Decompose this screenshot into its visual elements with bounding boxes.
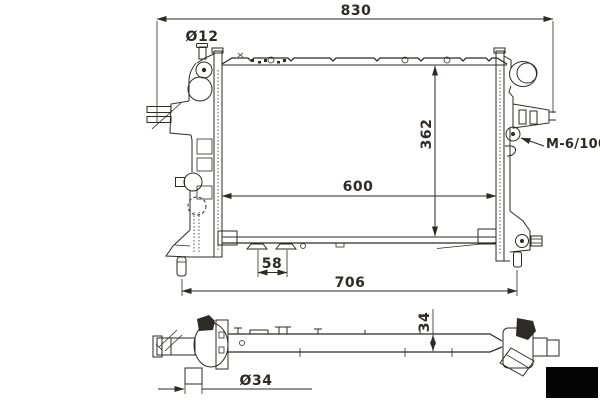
plan-top-clips <box>234 327 420 334</box>
dim-o34-label: Ø34 <box>240 373 273 389</box>
dim-706-label: 706 <box>335 275 366 291</box>
dimension-bleed-pipe: Ø12 <box>186 29 219 45</box>
thread-label: M-6/100 <box>546 137 600 152</box>
dim-34-label: 34 <box>417 312 433 332</box>
lower-bracket <box>166 230 190 257</box>
mounting-pin <box>147 117 171 123</box>
dimension-830: 830 <box>157 3 553 122</box>
bleed-pipe <box>199 47 206 59</box>
mounting-foot <box>276 244 296 249</box>
angled-pipe <box>500 348 534 376</box>
bottom-view <box>153 315 559 384</box>
dim-600-label: 600 <box>343 179 374 195</box>
dimension-34: 34 <box>417 309 433 351</box>
left-header-plate <box>212 48 223 257</box>
dimension-600: 600 <box>222 179 496 196</box>
outlet-pipe-plan <box>185 368 202 384</box>
radiator-drawing-page: 830 Ø12 600 362 58 706 M-6/100 <box>0 0 600 400</box>
core-top-header <box>222 53 507 65</box>
front-view <box>147 44 556 277</box>
mounting-pin <box>147 107 171 113</box>
dim-830-label: 830 <box>341 3 372 19</box>
core-bottom-edge <box>222 237 496 249</box>
plan-left-tank <box>153 315 228 384</box>
dim-58-label: 58 <box>262 256 282 272</box>
radiator-technical-drawing: 830 Ø12 600 362 58 706 M-6/100 <box>0 0 600 400</box>
side-bolt <box>531 236 542 246</box>
plan-core-body <box>228 327 502 357</box>
thread-callout: M-6/100 <box>521 137 600 152</box>
mounting-foot <box>247 244 267 249</box>
watermark-block <box>546 367 598 398</box>
overflow-fitting <box>197 315 215 331</box>
mounting-peg <box>177 257 186 276</box>
dimension-362: 362 <box>419 66 435 236</box>
filler-neck <box>510 62 537 87</box>
dimension-outlet-pipe: Ø34 <box>158 373 312 394</box>
side-pipe <box>533 338 547 356</box>
dimension-58: 58 <box>258 250 287 277</box>
dimension-706: 706 <box>182 270 517 296</box>
right-tank <box>496 56 556 267</box>
dim-362-label: 362 <box>419 119 435 150</box>
upper-bracket <box>170 101 191 135</box>
hose-port <box>188 77 212 101</box>
sensor-boss <box>184 173 202 191</box>
dim-o12-label: Ø12 <box>186 29 219 45</box>
mounting-peg <box>514 252 522 267</box>
